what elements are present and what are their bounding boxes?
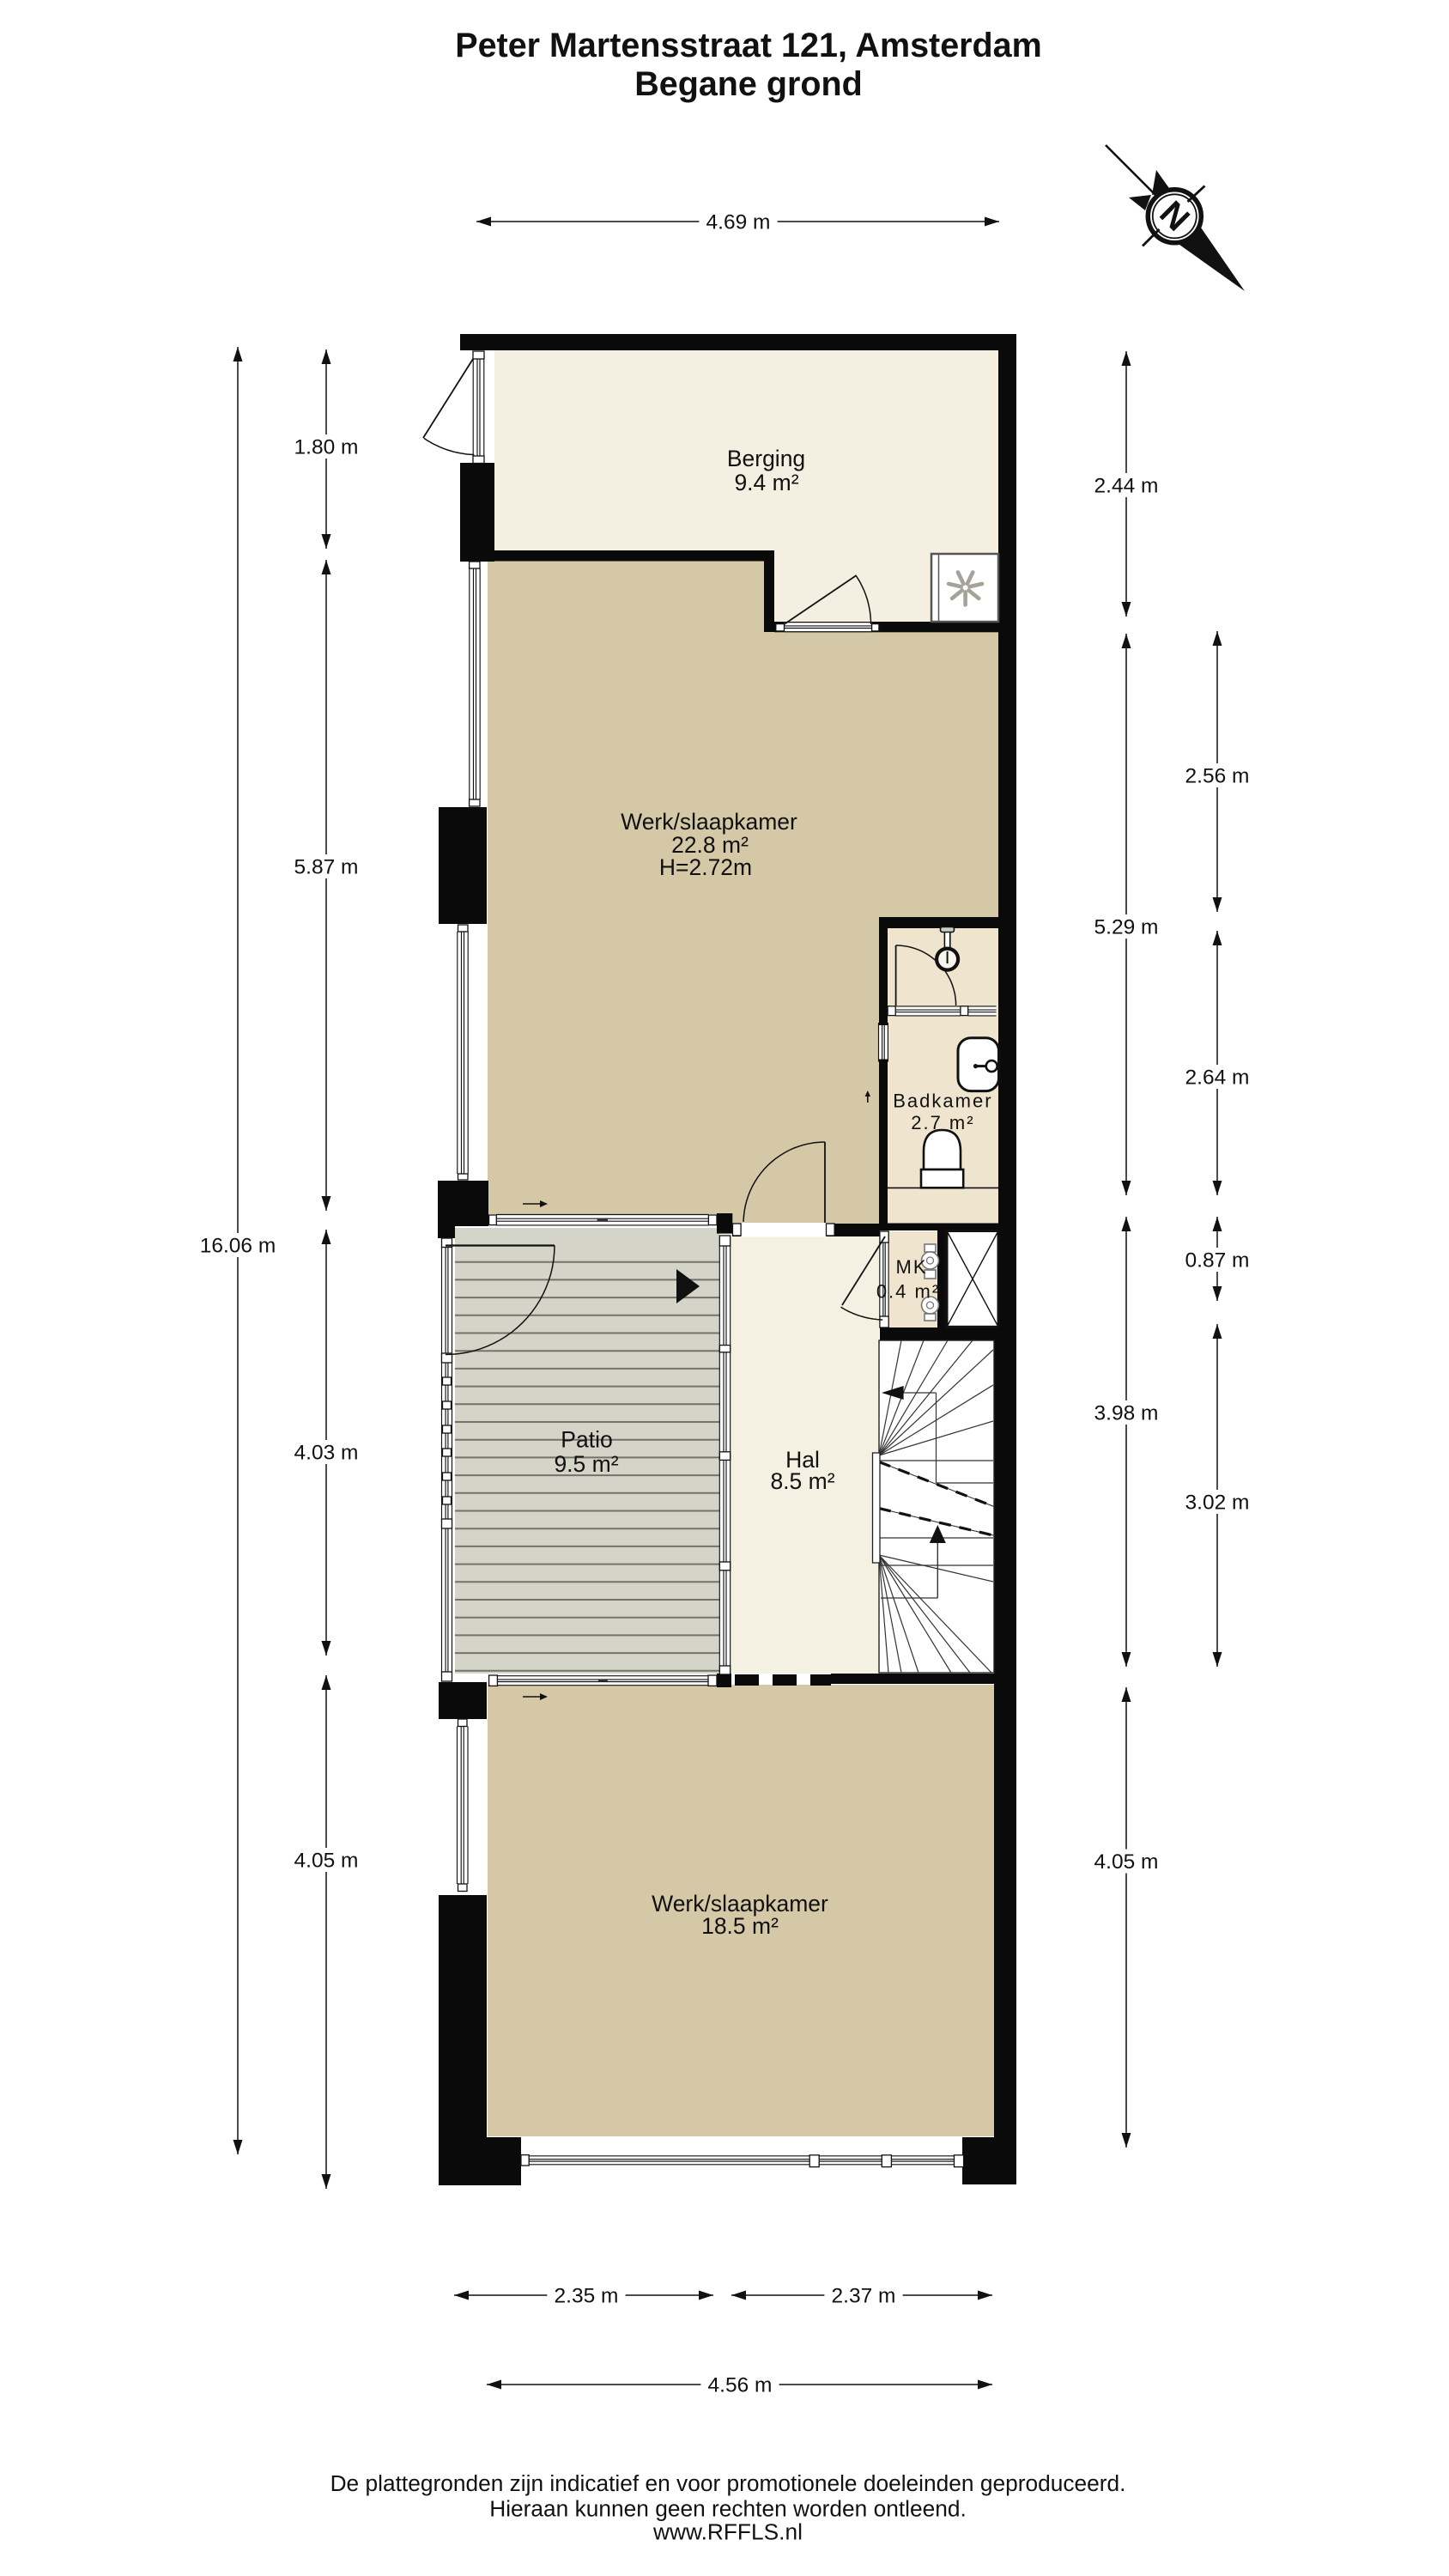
svg-text:9.5 m²: 9.5 m² xyxy=(554,1451,618,1477)
svg-text:0.4 m²: 0.4 m² xyxy=(876,1281,940,1303)
svg-text:2.56 m: 2.56 m xyxy=(1185,765,1250,788)
svg-text:Peter Martensstraat 121, Amste: Peter Martensstraat 121, Amsterdam xyxy=(455,27,1042,64)
svg-text:Werk/slaapkamer: Werk/slaapkamer xyxy=(621,809,797,835)
svg-text:Hieraan kunnen geen rechten wo: Hieraan kunnen geen rechten worden ontle… xyxy=(489,2496,967,2522)
svg-text:2.35 m: 2.35 m xyxy=(555,2285,619,2308)
svg-text:5.29 m: 5.29 m xyxy=(1094,916,1159,939)
svg-text:www.RFFLS.nl: www.RFFLS.nl xyxy=(652,2519,803,2545)
svg-text:De plattegronden zijn indicati: De plattegronden zijn indicatief en voor… xyxy=(330,2470,1126,2496)
svg-text:3.98 m: 3.98 m xyxy=(1094,1402,1159,1425)
svg-text:Badkamer: Badkamer xyxy=(893,1091,992,1112)
svg-text:5.87 m: 5.87 m xyxy=(294,856,359,879)
svg-text:Patio: Patio xyxy=(561,1427,612,1453)
svg-text:0.87 m: 0.87 m xyxy=(1185,1249,1250,1273)
svg-text:MK: MK xyxy=(896,1256,928,1278)
svg-text:9.4 m²: 9.4 m² xyxy=(734,470,798,495)
svg-text:4.05 m: 4.05 m xyxy=(1094,1850,1159,1874)
svg-text:2.37 m: 2.37 m xyxy=(832,2285,896,2308)
svg-text:H=2.72m: H=2.72m xyxy=(659,854,752,880)
svg-text:Begane grond: Begane grond xyxy=(634,65,863,103)
svg-text:4.69 m: 4.69 m xyxy=(706,211,771,234)
svg-text:4.05 m: 4.05 m xyxy=(294,1850,359,1873)
svg-text:Berging: Berging xyxy=(727,446,805,471)
svg-text:16.06 m: 16.06 m xyxy=(200,1235,276,1258)
svg-text:4.56 m: 4.56 m xyxy=(708,2374,773,2397)
svg-text:2.44 m: 2.44 m xyxy=(1094,475,1159,498)
svg-text:4.03 m: 4.03 m xyxy=(294,1442,359,1465)
svg-text:1.80 m: 1.80 m xyxy=(294,436,359,459)
svg-text:2.64 m: 2.64 m xyxy=(1185,1066,1250,1090)
svg-text:3.02 m: 3.02 m xyxy=(1185,1492,1250,1515)
svg-text:8.5 m²: 8.5 m² xyxy=(770,1468,834,1494)
svg-text:18.5 m²: 18.5 m² xyxy=(701,1913,779,1939)
svg-text:2.7 m²: 2.7 m² xyxy=(911,1112,974,1133)
